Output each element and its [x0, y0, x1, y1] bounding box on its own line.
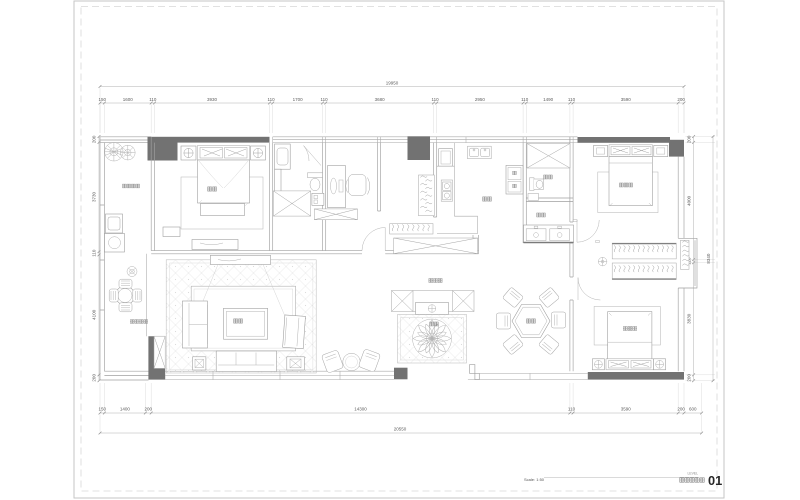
svg-text:150: 150: [98, 97, 106, 102]
svg-text:200: 200: [92, 135, 97, 143]
svg-text:150: 150: [98, 407, 106, 412]
svg-text:200: 200: [677, 97, 685, 102]
svg-text:1490: 1490: [543, 97, 554, 102]
svg-text:200: 200: [677, 407, 685, 412]
svg-text:110: 110: [521, 97, 529, 102]
svg-text:110: 110: [568, 407, 576, 412]
svg-text:110: 110: [92, 249, 97, 257]
svg-text:01: 01: [708, 473, 722, 488]
svg-text:600: 600: [689, 407, 697, 412]
svg-text:4100: 4100: [92, 309, 97, 320]
svg-text:3590: 3590: [621, 407, 632, 412]
svg-text:3930: 3930: [207, 97, 218, 102]
svg-text:200: 200: [92, 374, 97, 382]
svg-text:110: 110: [268, 97, 276, 102]
svg-text:14300: 14300: [354, 407, 367, 412]
svg-text:LEVEL: LEVEL: [687, 472, 698, 476]
svg-text:1700: 1700: [293, 97, 304, 102]
svg-text:8340: 8340: [706, 253, 711, 264]
svg-text:3730: 3730: [92, 191, 97, 202]
svg-text:Scale: 1:50: Scale: 1:50: [524, 477, 545, 482]
svg-text:19950: 19950: [386, 81, 399, 86]
svg-text:200: 200: [687, 135, 692, 143]
svg-text:2950: 2950: [475, 97, 486, 102]
svg-text:1600: 1600: [123, 97, 134, 102]
svg-text:110: 110: [568, 97, 576, 102]
svg-text:110: 110: [149, 97, 157, 102]
svg-text:20550: 20550: [394, 427, 407, 432]
svg-text:200: 200: [687, 374, 692, 382]
svg-text:1400: 1400: [120, 407, 131, 412]
svg-text:3830: 3830: [687, 313, 692, 324]
svg-text:3590: 3590: [621, 97, 632, 102]
svg-text:110: 110: [321, 97, 329, 102]
svg-text:4000: 4000: [687, 195, 692, 206]
svg-text:110: 110: [432, 97, 440, 102]
svg-text:200: 200: [145, 407, 153, 412]
svg-text:3680: 3680: [375, 97, 386, 102]
